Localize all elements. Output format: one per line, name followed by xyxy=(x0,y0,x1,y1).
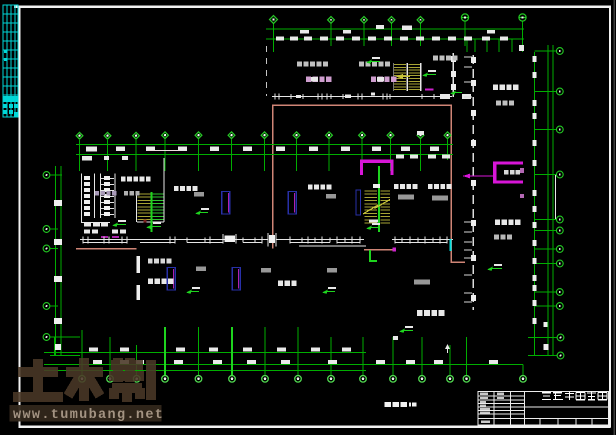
svg-text:www.tumubang.net: www.tumubang.net xyxy=(13,408,164,423)
